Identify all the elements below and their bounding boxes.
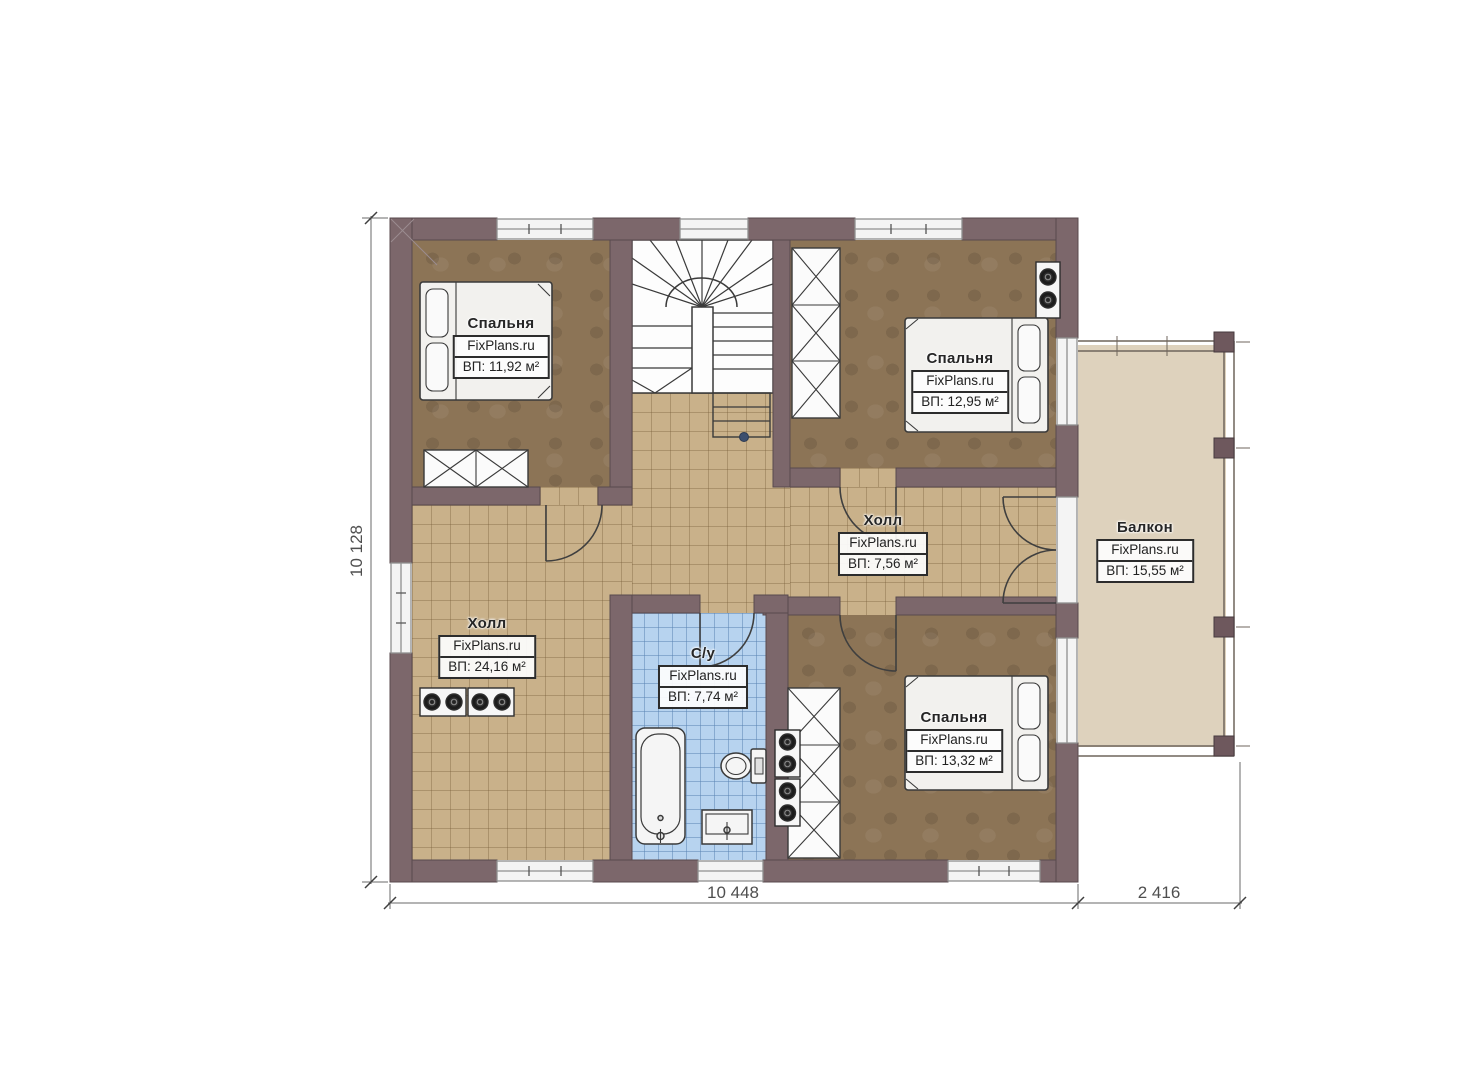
- floor-plan-canvas: Спальня FixPlans.ru ВП: 11,92 м² Спальня…: [0, 0, 1473, 1080]
- closet-bedroom-top-left: [424, 450, 528, 487]
- room-label-bathroom: С/у FixPlans.ru ВП: 7,74 м²: [658, 645, 748, 709]
- staircase: [632, 240, 773, 442]
- window-bottom-left: [497, 861, 593, 881]
- room-label-bedroom-top-right: Спальня FixPlans.ru ВП: 12,95 м²: [911, 350, 1009, 414]
- vent-box-bath-upper: [775, 730, 800, 777]
- bathtub: [636, 728, 685, 844]
- brand-watermark: FixPlans.ru: [455, 337, 548, 358]
- brand-watermark: FixPlans.ru: [913, 372, 1007, 393]
- room-info-box: FixPlans.ru ВП: 13,32 м²: [905, 729, 1003, 773]
- room-name: Холл: [468, 615, 507, 632]
- vent-box-top-right: [1036, 262, 1060, 318]
- window-top-right: [855, 219, 962, 239]
- room-name: Холл: [864, 512, 903, 529]
- room-info-box: FixPlans.ru ВП: 24,16 м²: [438, 635, 536, 679]
- room-name: С/у: [691, 645, 715, 662]
- window-top-left: [497, 219, 593, 239]
- room-area: ВП: 24,16 м²: [440, 658, 534, 677]
- room-area: ВП: 15,55 м²: [1098, 562, 1192, 581]
- dimension-width-balcony: 2 416: [1138, 883, 1181, 903]
- brand-watermark: FixPlans.ru: [840, 534, 926, 555]
- room-area: ВП: 11,92 м²: [455, 358, 548, 377]
- room-info-box: FixPlans.ru ВП: 7,74 м²: [658, 665, 748, 709]
- room-area: ВП: 7,56 м²: [840, 555, 926, 574]
- room-area: ВП: 7,74 м²: [660, 688, 746, 707]
- window-top-stair: [680, 219, 748, 239]
- room-info-box: FixPlans.ru ВП: 11,92 м²: [453, 335, 550, 379]
- room-name: Спальня: [921, 709, 988, 726]
- bathroom-fixtures: [636, 728, 766, 844]
- brand-watermark: FixPlans.ru: [660, 667, 746, 688]
- door-bedroom-top-left: [546, 505, 602, 561]
- room-label-hall-middle: Холл FixPlans.ru ВП: 7,56 м²: [838, 512, 928, 576]
- room-area: ВП: 12,95 м²: [913, 393, 1007, 412]
- balcony-door-opening: [1057, 497, 1077, 603]
- window-left: [391, 563, 411, 653]
- room-name: Балкон: [1117, 519, 1173, 536]
- room-info-box: FixPlans.ru ВП: 7,56 м²: [838, 532, 928, 576]
- brand-watermark: FixPlans.ru: [1098, 541, 1192, 562]
- room-name: Спальня: [468, 315, 535, 332]
- radiator-left-b: [468, 688, 514, 716]
- dimension-width-main: 10 448: [707, 883, 759, 903]
- room-label-bedroom-bottom-right: Спальня FixPlans.ru ВП: 13,32 м²: [905, 709, 1003, 773]
- toilet: [721, 749, 766, 783]
- room-label-bedroom-top-left: Спальня FixPlans.ru ВП: 11,92 м²: [453, 315, 550, 379]
- brand-watermark: FixPlans.ru: [440, 637, 534, 658]
- room-label-balcony: Балкон FixPlans.ru ВП: 15,55 м²: [1096, 519, 1194, 583]
- wardrobe-bedroom-top-right: [792, 248, 840, 418]
- window-right-bottom: [1057, 638, 1077, 743]
- radiator-left-a: [420, 688, 466, 716]
- room-label-hall-left: Холл FixPlans.ru ВП: 24,16 м²: [438, 615, 536, 679]
- room-area: ВП: 13,32 м²: [907, 752, 1001, 771]
- door-balcony-french: [1003, 497, 1056, 603]
- plan-drawing: [0, 0, 1473, 1080]
- room-info-box: FixPlans.ru ВП: 15,55 м²: [1096, 539, 1194, 583]
- vent-box-bath-lower: [775, 779, 800, 826]
- bathroom-vanity: [702, 810, 752, 844]
- door-bedroom-bottom-right: [840, 615, 896, 671]
- room-info-box: FixPlans.ru ВП: 12,95 м²: [911, 370, 1009, 414]
- window-right-top: [1057, 338, 1077, 425]
- room-name: Спальня: [927, 350, 994, 367]
- window-bottom-bath: [698, 861, 763, 881]
- brand-watermark: FixPlans.ru: [907, 731, 1001, 752]
- dimension-height: 10 128: [347, 525, 367, 577]
- window-bottom-right: [948, 861, 1040, 881]
